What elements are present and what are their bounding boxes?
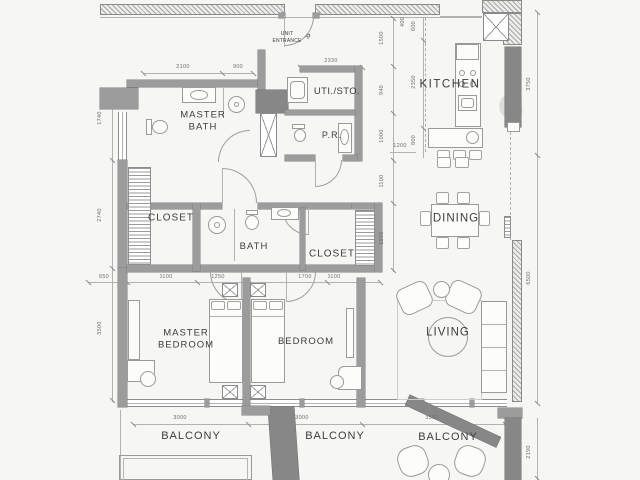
wall-balcony-east	[505, 418, 521, 480]
dim-label: 1200	[393, 143, 406, 149]
washer-drum	[290, 81, 305, 99]
shower-drain	[234, 102, 239, 107]
room-label-closet-2: CLOSET	[309, 248, 355, 261]
dim-label: 1100	[327, 274, 340, 280]
room-label-bath: BATH	[240, 241, 269, 253]
dining-chair	[437, 157, 451, 168]
stove-burner	[470, 70, 476, 76]
dim-line	[537, 418, 538, 480]
dim-label: 940	[379, 85, 385, 95]
wall-closet1-east	[193, 203, 200, 271]
window-band-south	[127, 399, 507, 407]
kitchen-top-line	[440, 16, 482, 17]
nightstand-lamp	[250, 283, 266, 297]
room-label-dining: DINING	[433, 212, 479, 227]
wall-bathrow-south	[127, 265, 380, 272]
dim-label: 1500	[379, 231, 385, 244]
island-sink	[466, 131, 479, 144]
wall-foyer-west	[258, 50, 265, 92]
wall-west	[118, 160, 127, 268]
wall-hatched-living-east	[512, 240, 522, 402]
bath-door-arc	[222, 168, 257, 203]
wall-balcony-block	[242, 406, 270, 415]
lounge-chair	[451, 442, 489, 480]
pillow	[253, 301, 267, 310]
dining-chair	[436, 237, 449, 249]
dim-label: 3000	[295, 415, 308, 421]
wall-uti-pr-divider	[285, 110, 355, 115]
duct-box	[260, 113, 277, 157]
bed	[209, 299, 243, 383]
lounge-chair	[394, 442, 432, 480]
stove-burner	[459, 70, 465, 76]
pr-door-leaf	[315, 160, 316, 187]
wall-block	[256, 90, 288, 113]
sofa-cushion-line	[482, 370, 506, 371]
fridge	[456, 44, 479, 60]
bed-blanket-line	[252, 316, 284, 317]
dim-label: 2350	[411, 75, 417, 88]
room-label-master-bedroom: MASTER BEDROOM	[158, 328, 214, 353]
planter-inner	[123, 458, 248, 480]
window	[118, 112, 127, 160]
wall-masterbath-north	[127, 80, 258, 87]
bed-blanket-line	[210, 316, 242, 317]
shower-drain	[214, 222, 220, 228]
window-mullion-line	[127, 403, 507, 404]
dining-chair	[457, 192, 470, 204]
dim-line	[112, 90, 113, 402]
sink-basin	[190, 90, 208, 100]
desk-chair	[140, 371, 156, 387]
bath-door-leaf	[222, 168, 223, 203]
entrance-arrow-icon: »	[301, 29, 316, 43]
wall-hatched-top	[100, 4, 285, 15]
wall-pr-south	[343, 155, 357, 161]
watermark: G	[498, 88, 524, 127]
kitchen-sink-basin	[461, 98, 474, 108]
toilet-bowl	[245, 215, 259, 230]
dim-line	[390, 152, 416, 153]
closet-rails	[355, 210, 375, 266]
floor-plan: » 2100 900 2330 1740 2740 3500 1500 940 …	[0, 0, 640, 480]
dim-label: 1500	[379, 31, 385, 44]
desk-chair	[330, 375, 344, 389]
dim-label: 1250	[211, 274, 224, 280]
shaft-box	[483, 13, 509, 41]
room-label-living: LIVING	[426, 326, 470, 341]
patio-table	[428, 464, 450, 480]
toilet-bowl	[152, 120, 168, 134]
room-label-balcony-2: BALCONY	[305, 429, 365, 443]
pillow	[227, 301, 241, 310]
unit-entrance-label: UNIT ENTRANCE	[272, 31, 301, 45]
dining-chair	[436, 192, 449, 204]
dim-label: 1100	[159, 274, 172, 280]
room-label-closet-1: CLOSET	[148, 212, 194, 225]
closet2-door-leaf	[308, 208, 309, 235]
room-label-uti-sto: UTI./STO.	[314, 86, 360, 98]
dining-chair	[457, 237, 470, 249]
dim-line	[143, 73, 253, 74]
room-label-kitchen: KITCHEN	[420, 78, 481, 93]
dim-label: 3750	[526, 77, 532, 90]
room-label-pr: P.R.	[322, 130, 342, 142]
bar-stool	[469, 150, 482, 160]
room-label-bedroom: BEDROOM	[278, 336, 334, 348]
masterbath-door-arc	[218, 130, 250, 162]
sofa-cushion-line	[482, 347, 506, 348]
tv-console	[346, 308, 354, 358]
dim-label: 2100	[176, 64, 189, 70]
sideboard	[504, 216, 511, 238]
dim-label: 800	[411, 135, 417, 145]
toilet-bowl	[294, 129, 306, 142]
window-frame	[300, 399, 304, 407]
window-frame	[205, 399, 209, 407]
pillow	[269, 301, 283, 310]
dim-label: 900	[233, 64, 243, 70]
wall-uti-east	[355, 66, 362, 161]
room-label-balcony-1: BALCONY	[161, 429, 221, 443]
dim-label: 1000	[379, 129, 385, 142]
bedroom-door-leaf	[286, 272, 287, 302]
sink-basin	[277, 209, 291, 217]
dim-label: 650	[99, 274, 109, 280]
wall-hatched-top	[315, 4, 440, 15]
dim-label: 1100	[379, 174, 385, 187]
nightstand-lamp	[250, 385, 266, 399]
dresser	[128, 300, 140, 360]
dim-label: 1740	[97, 111, 103, 124]
dining-chair	[455, 157, 469, 168]
dim-label: 2740	[97, 208, 103, 221]
wall-pr-south	[285, 155, 315, 161]
wall-bedroom-divider	[243, 278, 250, 407]
dim-line	[537, 12, 538, 403]
dining-chair	[479, 211, 490, 226]
nightstand-lamp	[222, 283, 238, 297]
dining-chair	[420, 211, 431, 226]
dim-label: 3000	[173, 415, 186, 421]
pillow	[211, 301, 225, 310]
dim-label: 400	[400, 17, 406, 27]
dim-label: 2190	[526, 445, 532, 458]
dim-label: 600	[411, 21, 417, 31]
nightstand-lamp	[222, 385, 238, 399]
wall-balcony-block	[498, 408, 522, 418]
dim-label: 2330	[324, 58, 337, 64]
dim-label: 3500	[97, 321, 103, 334]
dim-label: 1700	[298, 274, 311, 280]
pr-door-arc	[315, 160, 342, 187]
window-frame	[470, 399, 474, 407]
wall-hatched-corner	[482, 0, 522, 13]
wall-uti-north	[300, 66, 362, 72]
shower-glass-line	[234, 209, 235, 261]
wall-jog-west	[100, 88, 138, 109]
sofa-cushion-line	[482, 324, 506, 325]
wall-west	[118, 268, 127, 407]
room-label-master-bath: MASTER BATH	[180, 110, 226, 135]
window-mullion-line	[122, 112, 123, 160]
dim-label: 3500	[425, 415, 438, 421]
dim-label: 6500	[526, 271, 532, 284]
side-table	[433, 281, 450, 298]
room-label-balcony-3: BALCONY	[418, 430, 478, 444]
